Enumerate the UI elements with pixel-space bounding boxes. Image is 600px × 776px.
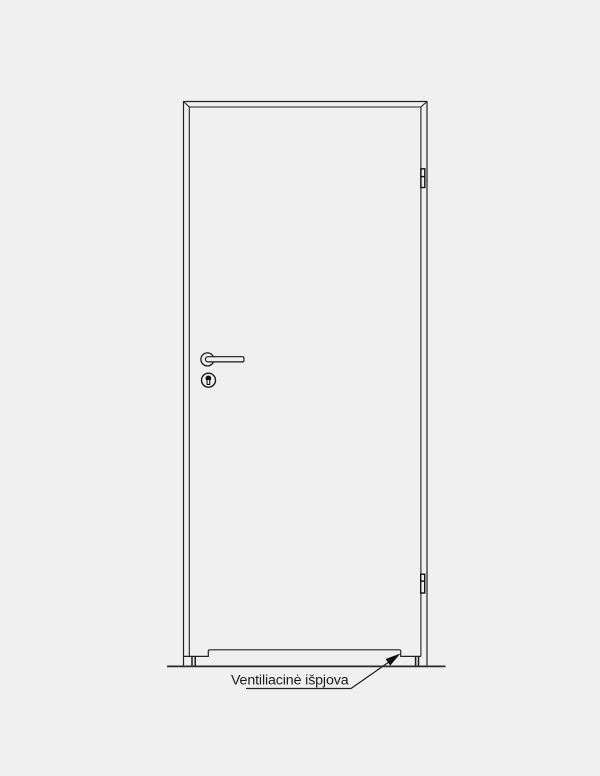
svg-text:Ventiliacinė išpjova: Ventiliacinė išpjova [231, 672, 349, 688]
